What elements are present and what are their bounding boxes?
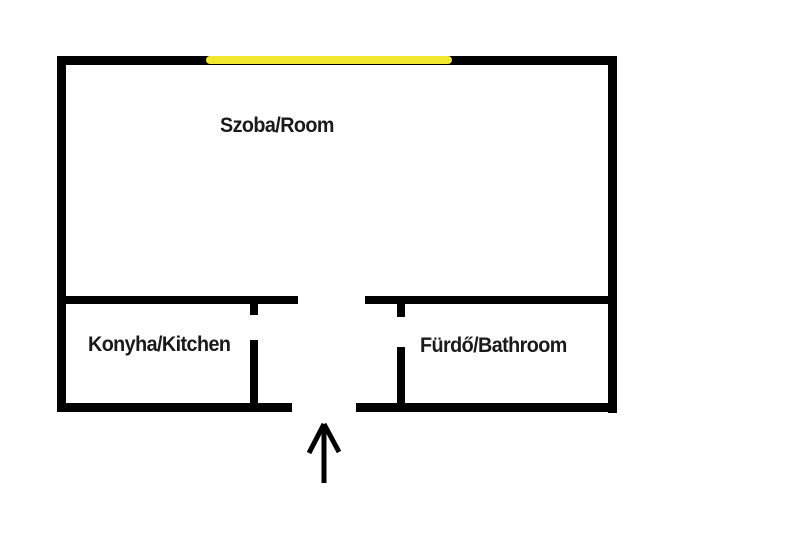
window-highlight-line [206,56,452,64]
wall-right [608,56,617,413]
kitchen-divider-wall [250,340,258,412]
interior-wall-left-segment [57,296,298,304]
arrow-up-icon [300,417,348,489]
floor-plan: Szoba/Room Konyha/Kitchen Fürdő/Bathroom [0,0,800,560]
room-label-konyha: Konyha/Kitchen [88,333,230,357]
wall-bottom-right [356,403,617,412]
kitchen-divider-stub [250,296,258,315]
wall-left [57,56,66,412]
bathroom-divider-wall [397,347,405,412]
bathroom-divider-stub [397,296,405,317]
room-label-szoba: Szoba/Room [220,114,334,138]
room-label-furdo: Fürdő/Bathroom [420,334,567,358]
